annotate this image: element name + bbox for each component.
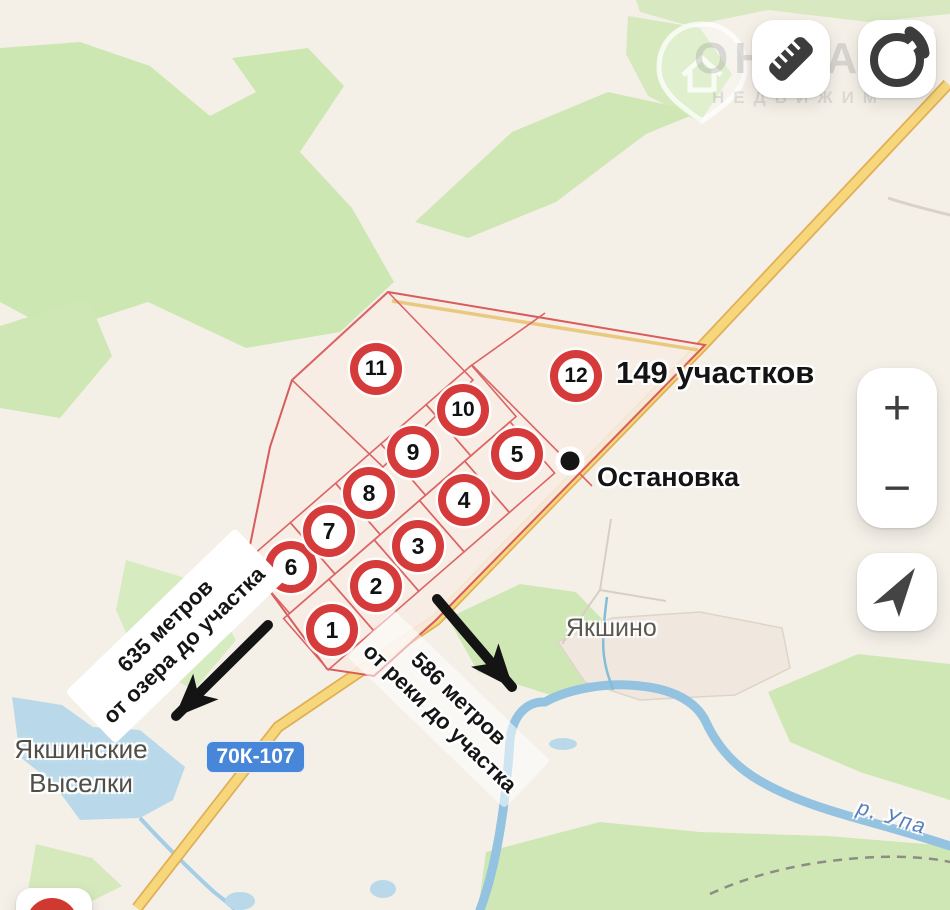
plot-marker-9[interactable]: 9 (387, 426, 439, 478)
location-arrow-icon (857, 553, 937, 631)
pond (370, 880, 396, 898)
plot-marker-10[interactable]: 10 (437, 384, 489, 436)
ruler-icon (752, 20, 830, 98)
zoom-in-button[interactable]: + (857, 368, 937, 448)
zoom-out-button[interactable]: − (857, 448, 937, 528)
road-number-badge: 70К-107 (206, 741, 305, 773)
village-yakshino-label: Якшино (566, 614, 657, 643)
village-vyselki-line1: Якшинские (14, 734, 147, 764)
plot-marker-1[interactable]: 1 (306, 604, 358, 656)
plots-count-label: 149 участков (616, 355, 814, 391)
zoom-control: + − (857, 368, 937, 528)
panorama-circle-icon (858, 20, 936, 98)
ruler-button[interactable] (752, 20, 830, 98)
map-viewport[interactable]: ОН ЕА НЕДВИЖИМ 1 2 3 4 5 6 7 8 9 10 11 1… (0, 0, 950, 910)
bus-stop-dot (556, 447, 585, 476)
pond (225, 892, 255, 910)
layers-button[interactable] (16, 888, 92, 910)
panorama-button[interactable] (858, 20, 936, 98)
plot-marker-12[interactable]: 12 (550, 350, 602, 402)
plot-marker-8[interactable]: 8 (343, 467, 395, 519)
village-area (558, 519, 790, 700)
plot-marker-5[interactable]: 5 (491, 428, 543, 480)
layers-icon (16, 888, 92, 910)
pond (549, 738, 577, 750)
bus-stop-label: Остановка (597, 462, 739, 493)
plot-marker-2[interactable]: 2 (350, 560, 402, 612)
village-vyselki-label: Якшинские Выселки (0, 733, 162, 801)
plot-marker-3[interactable]: 3 (392, 520, 444, 572)
plot-marker-7[interactable]: 7 (303, 505, 355, 557)
plot-marker-11[interactable]: 11 (350, 343, 402, 395)
plot-marker-4[interactable]: 4 (438, 474, 490, 526)
stream (140, 818, 235, 910)
village-vyselki-line2: Выселки (29, 768, 133, 798)
locate-button[interactable] (857, 553, 937, 631)
